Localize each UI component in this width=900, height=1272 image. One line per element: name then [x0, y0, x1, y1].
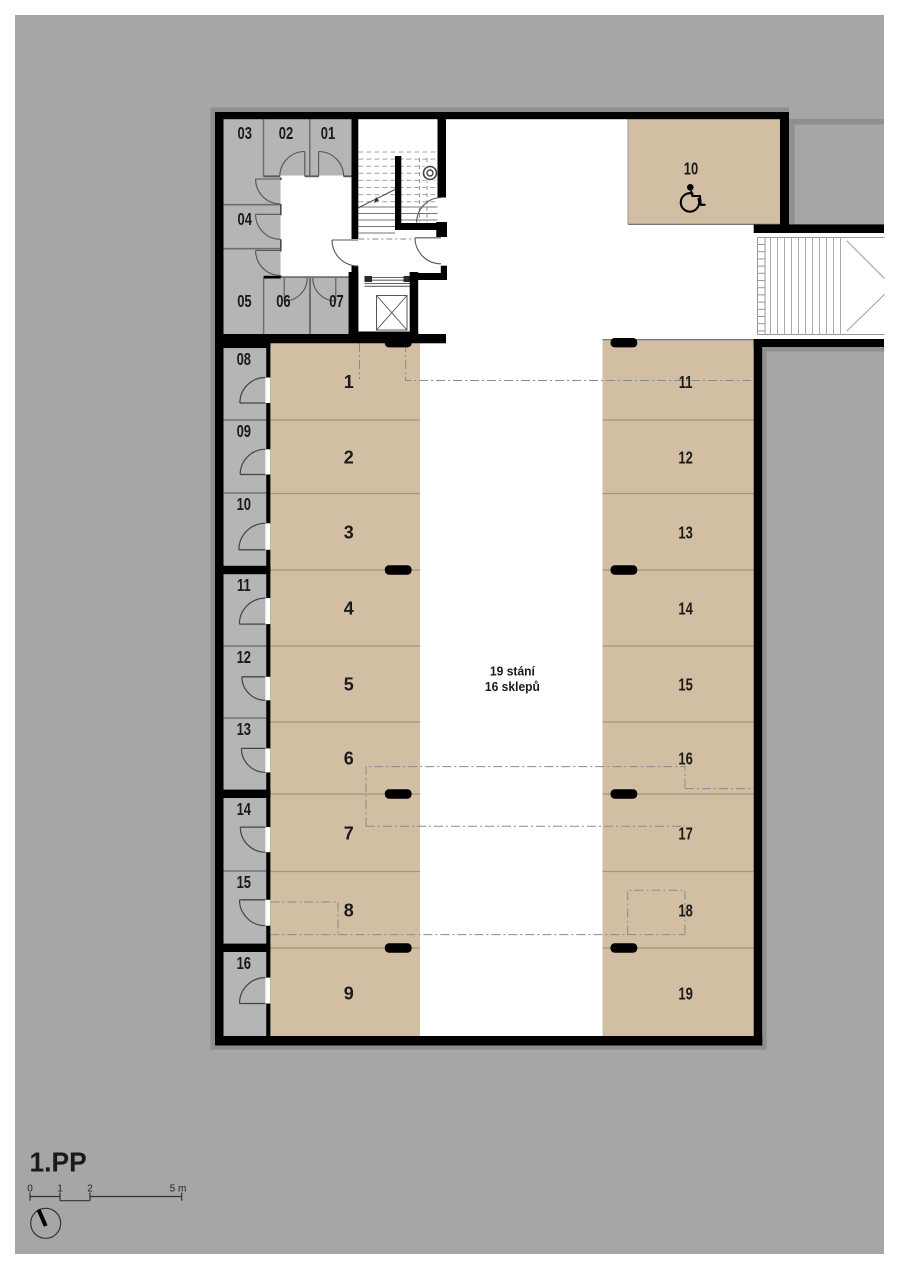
svg-text:10: 10 — [237, 495, 252, 515]
svg-text:14: 14 — [237, 800, 252, 820]
svg-text:09: 09 — [237, 422, 252, 442]
svg-text:16: 16 — [678, 750, 693, 770]
svg-text:17: 17 — [678, 824, 693, 844]
svg-text:13: 13 — [237, 720, 252, 740]
svg-text:2: 2 — [87, 1184, 93, 1195]
svg-text:03: 03 — [237, 124, 252, 144]
svg-text:0: 0 — [27, 1184, 33, 1195]
svg-text:4: 4 — [344, 599, 354, 619]
svg-text:14: 14 — [678, 600, 693, 620]
svg-text:1: 1 — [57, 1184, 63, 1195]
svg-text:07: 07 — [329, 292, 344, 312]
svg-text:08: 08 — [237, 350, 252, 370]
svg-text:10: 10 — [684, 160, 699, 180]
svg-text:6: 6 — [344, 749, 354, 769]
svg-text:12: 12 — [237, 648, 252, 668]
svg-text:5: 5 — [344, 675, 354, 695]
svg-text:1.PP: 1.PP — [30, 1147, 87, 1178]
svg-text:19 stání: 19 stání — [490, 664, 535, 678]
svg-text:01: 01 — [321, 124, 336, 144]
svg-text:05: 05 — [237, 292, 252, 312]
svg-text:18: 18 — [678, 901, 693, 921]
svg-text:02: 02 — [279, 124, 294, 144]
svg-text:19: 19 — [678, 985, 693, 1005]
svg-text:06: 06 — [276, 292, 291, 312]
svg-text:16: 16 — [237, 954, 252, 974]
svg-text:8: 8 — [344, 900, 354, 920]
svg-text:11: 11 — [679, 373, 693, 393]
svg-text:15: 15 — [237, 873, 252, 893]
svg-text:12: 12 — [678, 448, 693, 468]
svg-text:1: 1 — [344, 372, 354, 392]
svg-text:04: 04 — [237, 210, 252, 230]
svg-text:16 sklepů: 16 sklepů — [485, 679, 540, 693]
svg-text:2: 2 — [344, 447, 354, 467]
svg-text:11: 11 — [237, 576, 251, 596]
svg-text:15: 15 — [678, 676, 693, 696]
svg-text:9: 9 — [344, 984, 354, 1004]
svg-text:7: 7 — [344, 823, 354, 843]
svg-text:3: 3 — [344, 522, 354, 542]
svg-text:13: 13 — [678, 523, 693, 543]
svg-text:5 m: 5 m — [170, 1184, 187, 1195]
